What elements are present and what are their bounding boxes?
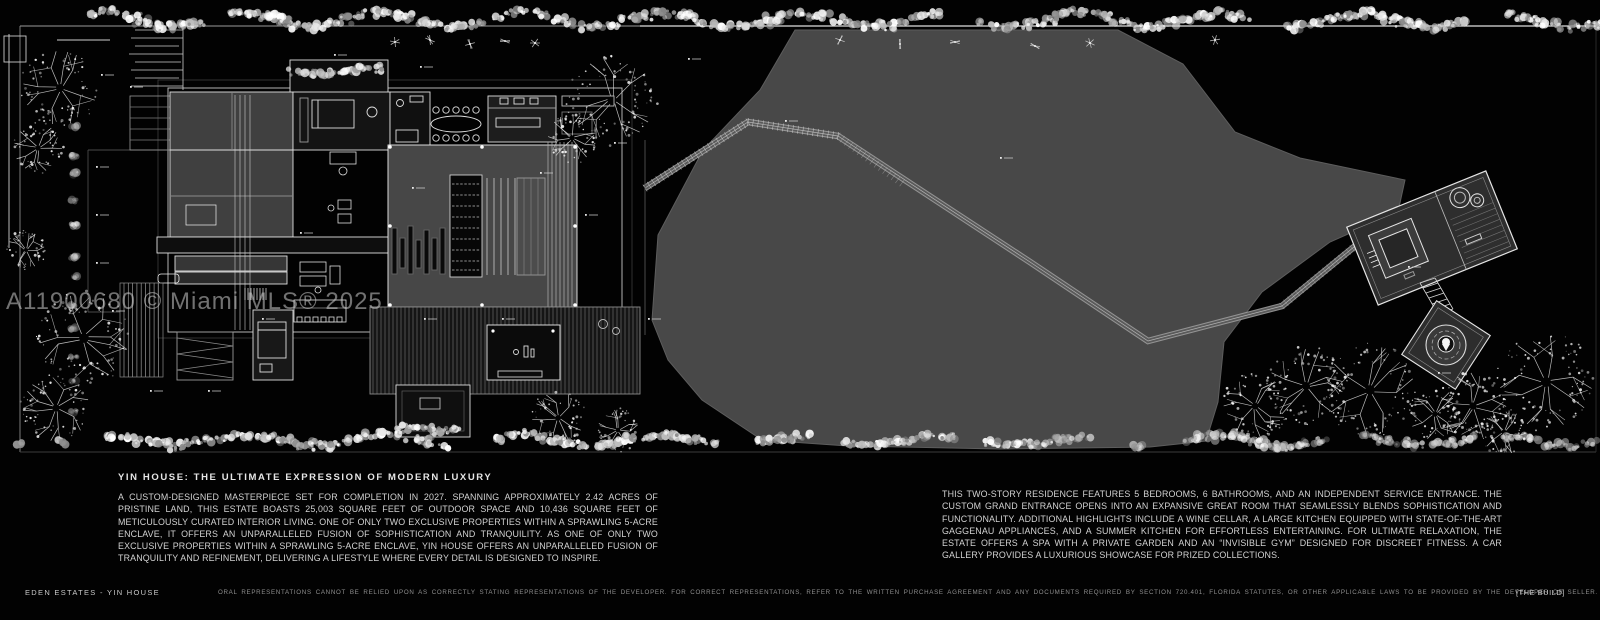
land-parcel-shape xyxy=(652,30,1405,449)
guest-bedroom xyxy=(253,310,293,380)
media-deck xyxy=(370,307,640,394)
description-left: A CUSTOM-DESIGNED MASTERPIECE SET FOR CO… xyxy=(118,491,658,565)
entry-court xyxy=(290,60,388,96)
page-title: YIN HOUSE: THE ULTIMATE EXPRESSION OF MO… xyxy=(118,472,492,483)
corridor xyxy=(157,237,420,253)
great-room xyxy=(388,145,577,307)
description-right: THIS TWO-STORY RESIDENCE FEATURES 5 BEDR… xyxy=(942,488,1502,562)
site-plan-board: A11900680 © Miami MLS® 2025 YIN HOUSE: T… xyxy=(0,0,1600,620)
kitchen xyxy=(488,96,614,142)
mls-watermark: A11900680 © Miami MLS® 2025 xyxy=(6,288,383,316)
ramp xyxy=(177,332,233,380)
floor-plan xyxy=(88,28,645,437)
bedroom-suite xyxy=(293,92,430,150)
wine-cellar xyxy=(450,175,482,277)
west-wing xyxy=(170,92,293,237)
spa-pavilion xyxy=(1402,301,1491,390)
footer-disclaimer: ORAL REPRESENTATIONS CANNOT BE RELIED UP… xyxy=(218,589,1598,596)
dining-area xyxy=(431,107,481,141)
footer-brand: [THE BUILD] xyxy=(1516,588,1565,597)
footer-project-name: EDEN ESTATES - YIN HOUSE xyxy=(25,588,160,597)
